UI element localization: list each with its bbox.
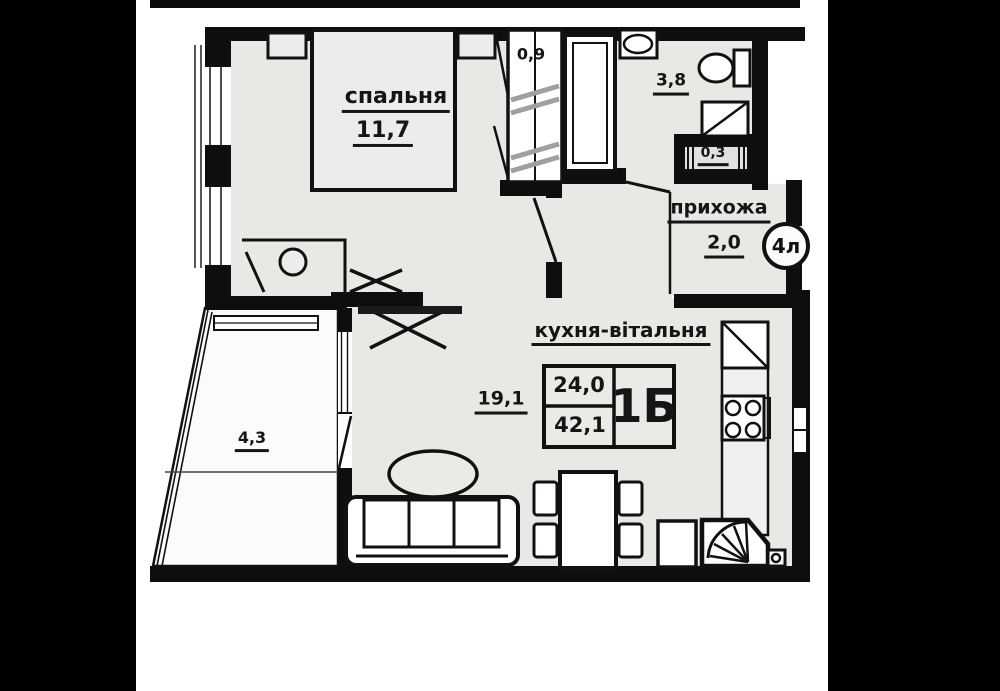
duct-area-label: 0,3 <box>698 146 729 166</box>
corridor-floor <box>552 186 672 298</box>
unit-badge-text: 4л <box>772 234 801 258</box>
wall-duct-left <box>674 134 684 184</box>
wall-duct-right <box>748 134 758 184</box>
toilet-icon <box>699 54 733 82</box>
bedroom-area-label: 11,7 <box>353 119 413 147</box>
balcony-wall-window <box>338 332 352 412</box>
wall-bedroom-door-b <box>546 262 562 298</box>
dining-chair <box>534 524 557 557</box>
stamp-total-area: 42,1 <box>554 414 606 436</box>
wall-bedroom-bottom <box>205 296 347 310</box>
desk-chair <box>280 249 306 275</box>
stamp-layout-code: 1Б <box>610 382 677 430</box>
wall-left-b <box>205 145 231 187</box>
wall-left-a <box>205 27 231 67</box>
wall-hall-right-a <box>786 180 802 226</box>
balcony-area-label: 4,3 <box>235 430 269 452</box>
dining-chair <box>619 482 642 515</box>
wardrobe-area-label: 0,9 <box>517 47 545 64</box>
kitchen-counter <box>722 368 768 535</box>
kitchen-wall-notch <box>794 408 806 429</box>
door-stop-box <box>768 550 785 566</box>
unit-badge: 4л <box>762 222 810 270</box>
bedroom-name-label: спальня <box>342 85 450 113</box>
bathroom-area-label: 3,8 <box>653 73 689 96</box>
dining-table <box>560 472 616 568</box>
kitchen-wall-notch <box>794 431 806 452</box>
coffee-table <box>389 451 477 497</box>
floorplan-drawing <box>0 0 1000 691</box>
stamp-living-area: 24,0 <box>553 374 605 396</box>
kitchen-name-label: кухня-вітальня <box>531 320 710 346</box>
hallway-name-label: прихожа <box>667 199 770 224</box>
nightstand-left <box>268 33 306 58</box>
wall-hall-bottom <box>674 294 804 308</box>
bedroom-window-1 <box>205 67 231 145</box>
bedroom-window-2 <box>205 187 231 265</box>
dining-chair <box>534 482 557 515</box>
kitchen-area-label: 19,1 <box>475 390 528 415</box>
nightstand-right <box>458 33 495 58</box>
toilet-tank <box>734 50 750 86</box>
side-cabinet <box>658 521 696 567</box>
wall-balcony-bottom <box>150 566 346 582</box>
sliding-panel <box>358 306 462 314</box>
floorplan-image: спальня 11,7 0,9 3,8 0,3 прихожа 2,0 кух… <box>0 0 1000 691</box>
dining-chair <box>619 524 642 557</box>
hallway-area-label: 2,0 <box>704 234 744 259</box>
